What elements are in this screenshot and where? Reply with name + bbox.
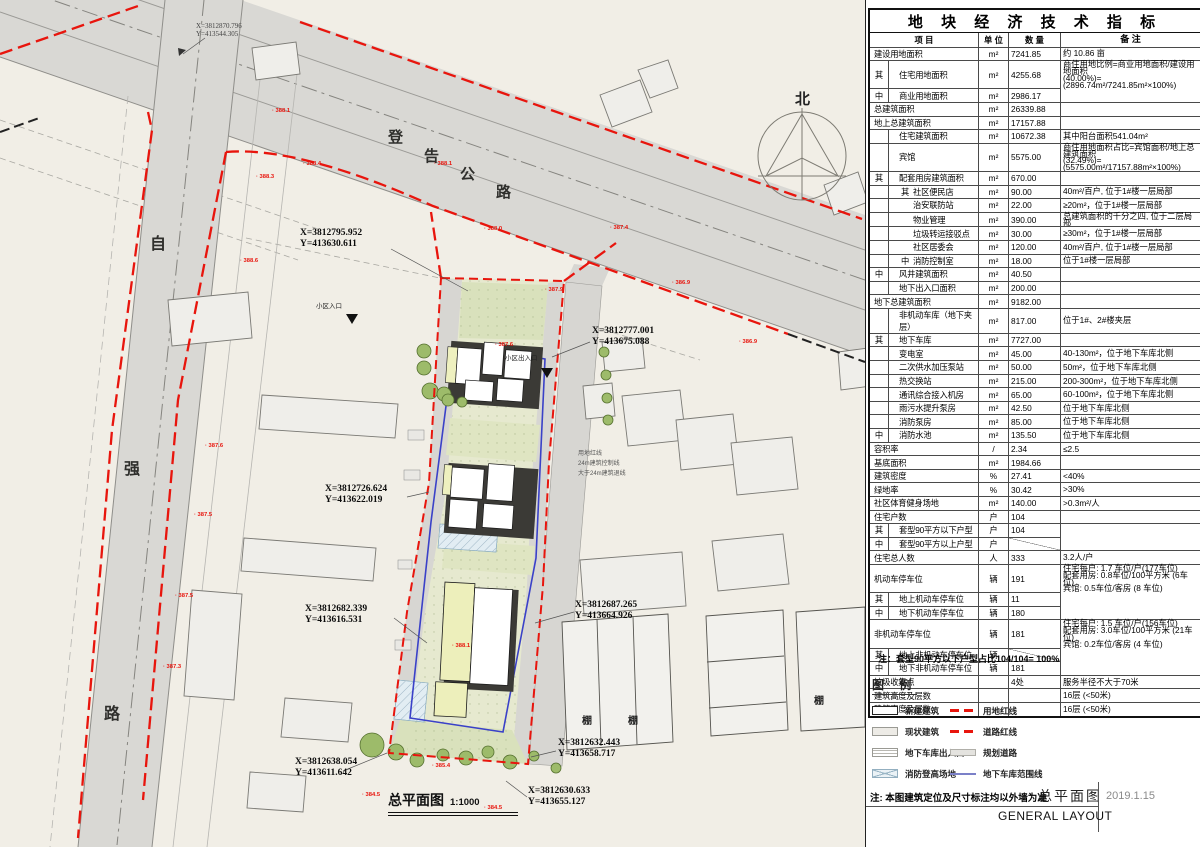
road-name-char: 路 [104, 700, 120, 724]
cell-unit: m² [978, 346, 1008, 360]
cell-item: 宾馆 [888, 143, 978, 171]
cell-item: 绿地率 [870, 482, 978, 496]
cell-unit: m² [978, 254, 1008, 268]
cell-item: 住宅户数 [870, 510, 978, 524]
cell-qty: 670.00 [1008, 171, 1060, 185]
cell-qty: 7727.00 [1008, 333, 1060, 347]
elevation-marker: 386.9 [672, 280, 690, 286]
coordinate-label: X=3812630.633Y=413655.127 [528, 786, 590, 808]
legend-label: 规划道路 [983, 747, 1017, 759]
cell-item: 住宅建筑面积 [888, 129, 978, 143]
blue-line-icon [950, 773, 976, 775]
cell-qty: 22.00 [1008, 198, 1060, 212]
cell-unit: 户 [978, 510, 1008, 524]
cell-unit: m² [978, 129, 1008, 143]
road-name-char: 强 [124, 455, 140, 479]
cell-unit: 辆 [978, 592, 1008, 606]
red-dash-icon [950, 730, 976, 732]
legend-item: 地下车库范围线 [950, 763, 1043, 784]
cell-note [1060, 537, 1200, 551]
cell-qty: 85.00 [1008, 414, 1060, 428]
cell-note [1060, 267, 1200, 281]
cell-note [1060, 510, 1200, 524]
cell-item: 地上机动车停车位 [888, 592, 978, 606]
cell-unit: m² [978, 294, 1008, 308]
cell-group: 其 [870, 171, 888, 185]
table-row: 宾馆m²5575.00商住用地面积占比=宾馆面积/地上总建筑面积 (32.49%… [870, 143, 1200, 171]
cell-unit: m² [978, 360, 1008, 374]
cell-note [1060, 333, 1200, 347]
header-item: 项 目 [870, 33, 978, 47]
legend: 图 例 新建建筑现状建筑地下车库出入口消防登高场地 用地红线道路红线规划道路地下… [868, 676, 1198, 695]
cell-group: 中 [870, 606, 888, 620]
elevation-marker: 388.4 [303, 161, 321, 167]
new-building-icon [872, 706, 898, 715]
elevation-marker: 388.1 [434, 161, 452, 167]
cell-note [1060, 455, 1200, 469]
cell-note: ≤2.5 [1060, 442, 1200, 456]
cell-item: 社区体育健身场地 [870, 496, 978, 510]
cell-note: 16层 (<50米) [1060, 702, 1200, 716]
coordinate-label: X=3812632.443Y=413658.717 [558, 738, 620, 760]
cell-note [1060, 281, 1200, 295]
road-name-char: 公 [460, 163, 475, 184]
cell-qty: 4255.68 [1008, 60, 1060, 88]
cell-note: 40m²/百户, 位于1#楼一层局部 [1060, 185, 1200, 199]
cell-note [1060, 88, 1200, 102]
cell-qty: 180 [1008, 606, 1060, 620]
cell-note [1060, 592, 1200, 606]
cell-unit: % [978, 482, 1008, 496]
legend-label: 地下车库范围线 [983, 768, 1043, 780]
cell-unit: m² [978, 171, 1008, 185]
north-label: 北 [795, 88, 810, 109]
cell-unit: m² [978, 496, 1008, 510]
planned-road-icon [950, 749, 976, 756]
legend-item: 规划道路 [950, 742, 1043, 763]
legend-item: 道路红线 [950, 721, 1043, 742]
cell-note: 60-100m²，位于地下车库北侧 [1060, 387, 1200, 401]
cell-item: 其社区便民店 [888, 185, 978, 199]
table-header: 项 目 单 位 数 量 备 注 [870, 33, 1200, 47]
cell-note: >30% [1060, 482, 1200, 496]
table-row: 地下总建筑面积m²9182.00 [870, 294, 1200, 308]
table-row: 住宅户数户104 [870, 510, 1200, 524]
cell-unit: 户 [978, 523, 1008, 537]
shed-label: 棚 [582, 712, 592, 727]
cell-group [870, 254, 888, 268]
table-row: 物业管理m²390.00总建筑面积的千分之四, 位于二层局部 [870, 212, 1200, 227]
cell-item: 风井建筑面积 [888, 267, 978, 281]
drawing-title-cn: 总平面图 [1038, 786, 1102, 806]
table-row: 二次供水加压泵站m²50.0050m²，位于地下车库北侧 [870, 360, 1200, 374]
cell-unit: m² [978, 88, 1008, 102]
cell-item: 物业管理 [888, 212, 978, 227]
title-block: 注: 本图建筑定位及尺寸标注均以外墙为准 总平面图 2019.1.15 GENE… [866, 782, 1200, 842]
cell-note [1060, 661, 1200, 675]
header-note: 备 注 [1060, 33, 1200, 47]
title-underline [388, 815, 518, 816]
cell-qty [1008, 537, 1060, 551]
cell-qty: 26339.88 [1008, 102, 1060, 116]
legend-right-column: 用地红线道路红线规划道路地下车库范围线 [950, 700, 1043, 784]
shed-label: 棚 [628, 712, 638, 727]
cell-unit: m² [978, 226, 1008, 240]
cell-unit: m² [978, 212, 1008, 227]
coordinate-label: X=3812777.001Y=413675.088 [592, 326, 654, 348]
cell-qty: 50.00 [1008, 360, 1060, 374]
table-row: 非机动车库（地下夹层）m²817.00位于1#、2#楼夹层 [870, 308, 1200, 333]
cell-qty: 135.50 [1008, 428, 1060, 442]
table-row: 非机动车停车位辆181住宅每户: 1.5 车位/户(156车位) 配套用房: 3… [870, 619, 1200, 647]
table-title: 地 块 经 济 技 术 指 标 [870, 10, 1200, 33]
cell-group: 其 [870, 592, 888, 606]
elevation-marker: 384.5 [484, 805, 502, 811]
cell-group [870, 129, 888, 143]
cell-item: 容积率 [870, 442, 978, 456]
cell-note: 3.2人/户 [1060, 550, 1200, 564]
road-name-char: 登 [388, 126, 403, 147]
elevation-marker: 388.6 [240, 258, 258, 264]
cell-note [1060, 171, 1200, 185]
cell-item: 热交换站 [888, 374, 978, 388]
cell-item: 二次供水加压泵站 [888, 360, 978, 374]
fire-area-icon [872, 769, 898, 778]
legend-title: 图 例 [872, 676, 917, 695]
cell-note [1060, 523, 1200, 537]
elevation-marker: 386.9 [739, 339, 757, 345]
cell-unit: 户 [978, 537, 1008, 551]
cell-item: 中消防控制室 [888, 254, 978, 268]
cell-qty: 1984.66 [1008, 455, 1060, 469]
coordinate-label: X=3812870.796Y=413544.305 [196, 22, 242, 38]
table-row: 中消防控制室m²18.00位于1#楼一层局部 [870, 254, 1200, 268]
cell-note: >0.3m²/人 [1060, 496, 1200, 510]
cell-unit: m² [978, 308, 1008, 333]
plan-scale: 1:1000 [450, 797, 480, 808]
table-row: 其地上机动车停车位辆11 [870, 592, 1200, 606]
cell-note: 50m²，位于地下车库北侧 [1060, 360, 1200, 374]
table-footnote: 注：套型90平方以下户型占比104/104= 100% [878, 652, 1059, 665]
cell-item: 非机动车停车位 [870, 619, 978, 647]
cell-qty: 215.00 [1008, 374, 1060, 388]
cell-note [1060, 294, 1200, 308]
table-body: 建设用地面积m²7241.85约 10.86 亩其住宅用地面积m²4255.68… [870, 47, 1200, 716]
cell-unit: m² [978, 102, 1008, 116]
legend-label: 用地红线 [983, 705, 1017, 717]
cell-unit: 辆 [978, 619, 1008, 647]
cell-unit: 辆 [978, 606, 1008, 620]
cell-group [870, 281, 888, 295]
cell-item: 地下机动车停车位 [888, 606, 978, 620]
cell-group [870, 346, 888, 360]
cell-note: 总建筑面积的千分之四, 位于二层局部 [1060, 212, 1200, 227]
cell-qty: 11 [1008, 592, 1060, 606]
cell-unit: m² [978, 428, 1008, 442]
elevation-marker: 387.5 [194, 512, 212, 518]
cell-qty: 104 [1008, 510, 1060, 524]
cell-item: 通讯综合接入机房 [888, 387, 978, 401]
cell-qty: 104 [1008, 523, 1060, 537]
cell-qty: 191 [1008, 564, 1060, 592]
site-plan-drawing [0, 0, 865, 847]
elevation-marker: 387.6 [495, 342, 513, 348]
elevation-marker: 387.5 [175, 593, 193, 599]
cell-item: 住宅总人数 [870, 550, 978, 564]
title-underline [388, 812, 518, 813]
elevation-marker: 387.6 [205, 443, 223, 449]
site-plan: 登 告 公 路 自 强 路 北 用地红线 24m建筑控制线 大于24m建筑退线 … [0, 0, 865, 847]
cell-item: 非机动车库（地下夹层） [888, 308, 978, 333]
cell-group: 中 [870, 88, 888, 102]
divider [1098, 782, 1099, 832]
cell-qty: 17157.88 [1008, 116, 1060, 130]
cell-qty: 7241.85 [1008, 47, 1060, 61]
cell-item: 垃圾转运接驳点 [888, 226, 978, 240]
cell-unit: m² [978, 47, 1008, 61]
indicator-panel: 地 块 经 济 技 术 指 标 项 目 单 位 数 量 备 注 建设用地面积m²… [865, 0, 1200, 847]
cell-qty: 65.00 [1008, 387, 1060, 401]
table-row: 通讯综合接入机房m²65.0060-100m²，位于地下车库北侧 [870, 387, 1200, 401]
legend-label: 道路红线 [983, 726, 1017, 738]
cell-unit: m² [978, 116, 1008, 130]
cell-unit: m² [978, 240, 1008, 254]
cell-note: 商住用地面积占比=宾馆面积/地上总建筑面积 (32.49%)=(5575.00m… [1060, 143, 1200, 171]
cell-qty: 90.00 [1008, 185, 1060, 199]
legend-item: 用地红线 [950, 700, 1043, 721]
entrance-label: 小区出入口 [505, 352, 538, 362]
cell-item: 地下出入口面积 [888, 281, 978, 295]
table-row: 中风井建筑面积m²40.50 [870, 267, 1200, 281]
cell-note: 位于地下车库北侧 [1060, 428, 1200, 442]
cell-item: 机动车停车位 [870, 564, 978, 592]
cell-qty: 5575.00 [1008, 143, 1060, 171]
elevation-marker: 388.1 [272, 108, 290, 114]
table-row: 绿地率%30.42>30% [870, 482, 1200, 496]
cell-group: 其 [870, 523, 888, 537]
road-name-char: 自 [150, 230, 166, 254]
existing-building-icon [872, 727, 898, 736]
coordinate-label: X=3812726.624Y=413622.019 [325, 484, 387, 506]
coordinate-label: X=3812682.339Y=413616.531 [305, 604, 367, 626]
cell-qty: 120.00 [1008, 240, 1060, 254]
table-row: 基底面积m²1984.66 [870, 455, 1200, 469]
cell-note: 约 10.86 亩 [1060, 47, 1200, 61]
cell-item: 变电室 [888, 346, 978, 360]
table-row: 地上总建筑面积m²17157.88 [870, 116, 1200, 130]
setback-label: 24m建筑控制线 [578, 460, 620, 469]
cell-qty: 2986.17 [1008, 88, 1060, 102]
cell-qty: 30.42 [1008, 482, 1060, 496]
table-row: 治安联防站m²22.00≥20m²，位于1#楼一层局部 [870, 198, 1200, 212]
indicator-table: 地 块 经 济 技 术 指 标 项 目 单 位 数 量 备 注 建设用地面积m²… [868, 8, 1200, 718]
new-building-2 [440, 461, 539, 539]
table-row: 住宅总人数人3333.2人/户 [870, 550, 1200, 564]
cell-item: 消防泵房 [888, 414, 978, 428]
cell-qty: 30.00 [1008, 226, 1060, 240]
cell-group [870, 185, 888, 199]
shed-label: 棚 [814, 692, 824, 707]
cell-group: 其 [870, 333, 888, 347]
cell-unit: 辆 [978, 564, 1008, 592]
drawing-sheet: 登 告 公 路 自 强 路 北 用地红线 24m建筑控制线 大于24m建筑退线 … [0, 0, 1200, 847]
table-row: 其社区便民店m²90.0040m²/百户, 位于1#楼一层局部 [870, 185, 1200, 199]
cell-item: 地下车库 [888, 333, 978, 347]
table-row: 热交换站m²215.00200-300m²，位于地下车库北侧 [870, 374, 1200, 388]
cell-qty: 45.00 [1008, 346, 1060, 360]
cell-item: 商业用地面积 [888, 88, 978, 102]
cell-item: 社区居委会 [888, 240, 978, 254]
road-name-char: 路 [496, 181, 511, 202]
cell-item: 套型90平方以上户型 [888, 537, 978, 551]
cell-qty: 817.00 [1008, 308, 1060, 333]
table-row: 其套型90平方以下户型户104 [870, 523, 1200, 537]
elevation-marker: 388.1 [452, 643, 470, 649]
divider [866, 806, 1098, 807]
red-dash-bold-icon [950, 709, 976, 712]
cell-qty: 200.00 [1008, 281, 1060, 295]
table-row: 中地下机动车停车位辆180 [870, 606, 1200, 620]
cell-item: 建设用地面积 [870, 47, 978, 61]
cell-item: 建筑密度 [870, 469, 978, 483]
cell-note: <40% [1060, 469, 1200, 483]
table-row: 其住宅用地面积m²4255.68商住用地比例=商业用地面积/建设用地面积 (40… [870, 60, 1200, 88]
cell-qty: 10672.38 [1008, 129, 1060, 143]
drawing-note: 注: 本图建筑定位及尺寸标注均以外墙为准 [870, 790, 1047, 804]
entrance-label: 小区入口 [316, 300, 342, 310]
cell-group [870, 414, 888, 428]
legend-label: 消防登高场地 [905, 768, 956, 780]
cell-note: 位于地下车库北侧 [1060, 414, 1200, 428]
cell-item: 地下总建筑面积 [870, 294, 978, 308]
coordinate-label: X=3812687.265Y=413664.926 [575, 600, 637, 622]
elevation-marker: 387.4 [610, 225, 628, 231]
cell-note: 住宅每户: 1.5 车位/户(156车位) 配套用房: 3.0车位/100平方米… [1060, 619, 1200, 647]
table-row: 住宅建筑面积m²10672.38其中阳台面积541.04m² [870, 129, 1200, 143]
coordinate-label: X=3812795.952Y=413630.611 [300, 228, 362, 250]
drawing-title-en: GENERAL LAYOUT [998, 809, 1112, 823]
cell-item: 套型90平方以下户型 [888, 523, 978, 537]
cell-group [870, 360, 888, 374]
cell-note: 40m²/百户, 位于1#楼一层局部 [1060, 240, 1200, 254]
cell-item: 总建筑面积 [870, 102, 978, 116]
cell-unit: m² [978, 60, 1008, 88]
table-row: 建设用地面积m²7241.85约 10.86 亩 [870, 47, 1200, 61]
cell-item: 配套用房建筑面积 [888, 171, 978, 185]
table-row: 地下出入口面积m²200.00 [870, 281, 1200, 295]
cell-qty: 390.00 [1008, 212, 1060, 227]
cell-group [870, 374, 888, 388]
elevation-marker: 384.5 [362, 792, 380, 798]
cell-group [870, 143, 888, 171]
table-row: 雨污水提升泵房m²42.50位于地下车库北侧 [870, 401, 1200, 415]
cell-unit: m² [978, 185, 1008, 199]
cell-note: ≥20m²，位于1#楼一层局部 [1060, 198, 1200, 212]
cell-qty: 40.50 [1008, 267, 1060, 281]
cell-note [1060, 606, 1200, 620]
cell-item: 住宅用地面积 [888, 60, 978, 88]
cell-note [1060, 116, 1200, 130]
elevation-marker: 387.3 [163, 664, 181, 670]
cell-group [870, 401, 888, 415]
cell-unit: m² [978, 198, 1008, 212]
coordinate-label: X=3812638.054Y=413611.642 [295, 757, 357, 779]
cell-group: 其 [870, 60, 888, 88]
header-unit: 单 位 [978, 33, 1008, 47]
table-row: 中套型90平方以上户型户 [870, 537, 1200, 551]
cell-unit: m² [978, 414, 1008, 428]
cell-unit: m² [978, 143, 1008, 171]
table-row: 垃圾转运接驳点m²30.00≥30m²，位于1#楼一层局部 [870, 226, 1200, 240]
cell-item: 治安联防站 [888, 198, 978, 212]
cell-note: ≥30m²，位于1#楼一层局部 [1060, 226, 1200, 240]
cell-note: 200-300m²，位于地下车库北侧 [1060, 374, 1200, 388]
cell-note: 位于地下车库北侧 [1060, 401, 1200, 415]
shed-parcels [562, 607, 865, 750]
cell-unit: 人 [978, 550, 1008, 564]
cell-item: 基底面积 [870, 455, 978, 469]
cell-qty: 18.00 [1008, 254, 1060, 268]
cell-group: 中 [870, 267, 888, 281]
cell-unit: m² [978, 401, 1008, 415]
table-row: 社区居委会m²120.0040m²/百户, 位于1#楼一层局部 [870, 240, 1200, 254]
cell-note: 40-130m²，位于地下车库北侧 [1060, 346, 1200, 360]
plan-title-text: 总平面图 [388, 794, 444, 809]
cell-qty: 181 [1008, 619, 1060, 647]
table-row: 总建筑面积m²26339.88 [870, 102, 1200, 116]
elevation-marker: 387.9 [545, 287, 563, 293]
cell-qty: 2.34 [1008, 442, 1060, 456]
table-row: 容积率/2.34≤2.5 [870, 442, 1200, 456]
table-row: 社区体育健身场地m²140.00>0.3m²/人 [870, 496, 1200, 510]
cell-unit: m² [978, 267, 1008, 281]
cell-note [1060, 648, 1200, 662]
table-row: 建筑密度%27.41<40% [870, 469, 1200, 483]
elevation-marker: 388.3 [256, 174, 274, 180]
cell-group [870, 240, 888, 254]
cell-item: 雨污水提升泵房 [888, 401, 978, 415]
cell-note: 位于1#、2#楼夹层 [1060, 308, 1200, 333]
cell-note: 其中阳台面积541.04m² [1060, 129, 1200, 143]
garage-entrance-icon [872, 748, 898, 757]
cell-group: 中 [870, 428, 888, 442]
table-row: 消防泵房m²85.00位于地下车库北侧 [870, 414, 1200, 428]
table-row: 中商业用地面积m²2986.17 [870, 88, 1200, 102]
header-qty: 数 量 [1008, 33, 1060, 47]
table-row: 其配套用房建筑面积m²670.00 [870, 171, 1200, 185]
cell-group [870, 308, 888, 333]
cell-unit: m² [978, 387, 1008, 401]
cell-group [870, 212, 888, 227]
cell-qty: 9182.00 [1008, 294, 1060, 308]
cell-group [870, 387, 888, 401]
cell-unit: m² [978, 455, 1008, 469]
cell-item: 消防水池 [888, 428, 978, 442]
cell-unit: % [978, 469, 1008, 483]
cell-note: 位于1#楼一层局部 [1060, 254, 1200, 268]
cell-unit: m² [978, 374, 1008, 388]
legend-label: 新建建筑 [905, 705, 939, 717]
cell-group [870, 226, 888, 240]
cell-group: 中 [870, 537, 888, 551]
cell-note: 住宅每户: 1.7 车位/户(177车位) 配套用房: 0.8车位/100平方米… [1060, 564, 1200, 592]
cell-qty: 27.41 [1008, 469, 1060, 483]
cell-unit: m² [978, 333, 1008, 347]
legend-label: 现状建筑 [905, 726, 939, 738]
setback-label: 大于24m建筑退线 [578, 470, 626, 479]
cell-qty: 42.50 [1008, 401, 1060, 415]
elevation-marker: 385.4 [432, 763, 450, 769]
